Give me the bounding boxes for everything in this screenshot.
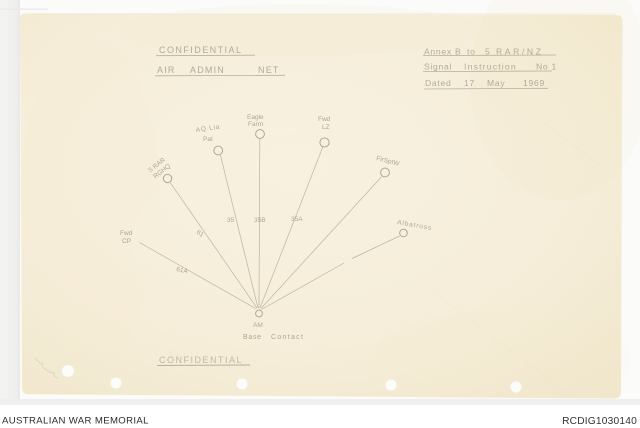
svg-text:SignalInstructionNo 1: SignalInstructionNo 1 [424, 62, 557, 72]
svg-text:CONFIDENTIAL: CONFIDENTIAL [159, 355, 243, 365]
svg-text:AIRADMINNET: AIRADMINNET [157, 65, 280, 75]
svg-text:AUSTRALIAN WAR MEMORIAL: AUSTRALIAN WAR MEMORIAL [2, 416, 149, 427]
svg-text:AM: AM [253, 322, 263, 329]
svg-text:Pat: Pat [203, 136, 213, 143]
svg-text:Eagle: Eagle [247, 114, 264, 121]
svg-text:CP: CP [122, 238, 131, 245]
svg-text:BaseContact: BaseContact [243, 334, 304, 341]
svg-text:Fwd: Fwd [318, 116, 331, 123]
svg-text:35: 35 [227, 217, 235, 224]
svg-text:35B: 35B [254, 217, 266, 224]
svg-text:Fwd: Fwd [120, 230, 133, 237]
svg-text:35A: 35A [291, 216, 303, 223]
svg-text:CONFIDENTIAL: CONFIDENTIAL [159, 45, 242, 55]
svg-text:Farm: Farm [248, 121, 263, 128]
svg-text:LZ: LZ [322, 124, 330, 131]
svg-text:RCDIG1030140: RCDIG1030140 [562, 416, 637, 427]
